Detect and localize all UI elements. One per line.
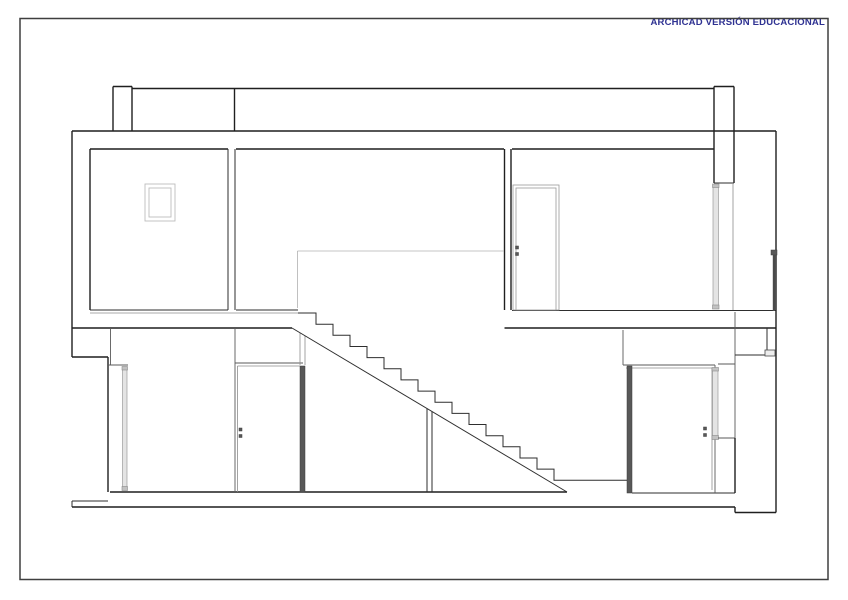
door-left-glass <box>123 368 128 488</box>
door-left-cap-top <box>122 367 128 371</box>
door-mid-handle-a <box>239 428 242 431</box>
sheet: ARCHICAD VERSIÓN EDUCACIONAL <box>0 0 848 600</box>
sheet-frame <box>20 19 828 580</box>
window-inner <box>149 188 171 217</box>
door-upper-handle-b <box>516 253 519 256</box>
door-right-glass <box>713 369 719 437</box>
glazing-right-cap-bottom <box>713 305 720 309</box>
door-right-glass-cap-bottom <box>712 436 719 440</box>
door-left-cap-bottom <box>122 487 128 491</box>
railing-cap <box>771 250 777 255</box>
stair-steps <box>298 313 571 480</box>
window-sill-right <box>765 350 775 356</box>
stair-soffit <box>292 328 567 492</box>
door-mid-handle-b <box>239 435 242 438</box>
glazing-right-cap-top <box>713 184 720 188</box>
door-upper-handle-a <box>516 246 519 249</box>
door-right-glass-cap-top <box>712 368 719 372</box>
door-right-handle-a <box>704 427 707 430</box>
door-mid-jamb-bar <box>300 366 305 492</box>
door-upper-leaf <box>516 188 556 310</box>
window-outer <box>145 184 175 221</box>
door-right-jamb-bar <box>627 366 632 493</box>
glazing-right-glass <box>713 185 719 308</box>
door-right-handle-b <box>704 434 707 437</box>
building-section-drawing <box>0 0 848 600</box>
